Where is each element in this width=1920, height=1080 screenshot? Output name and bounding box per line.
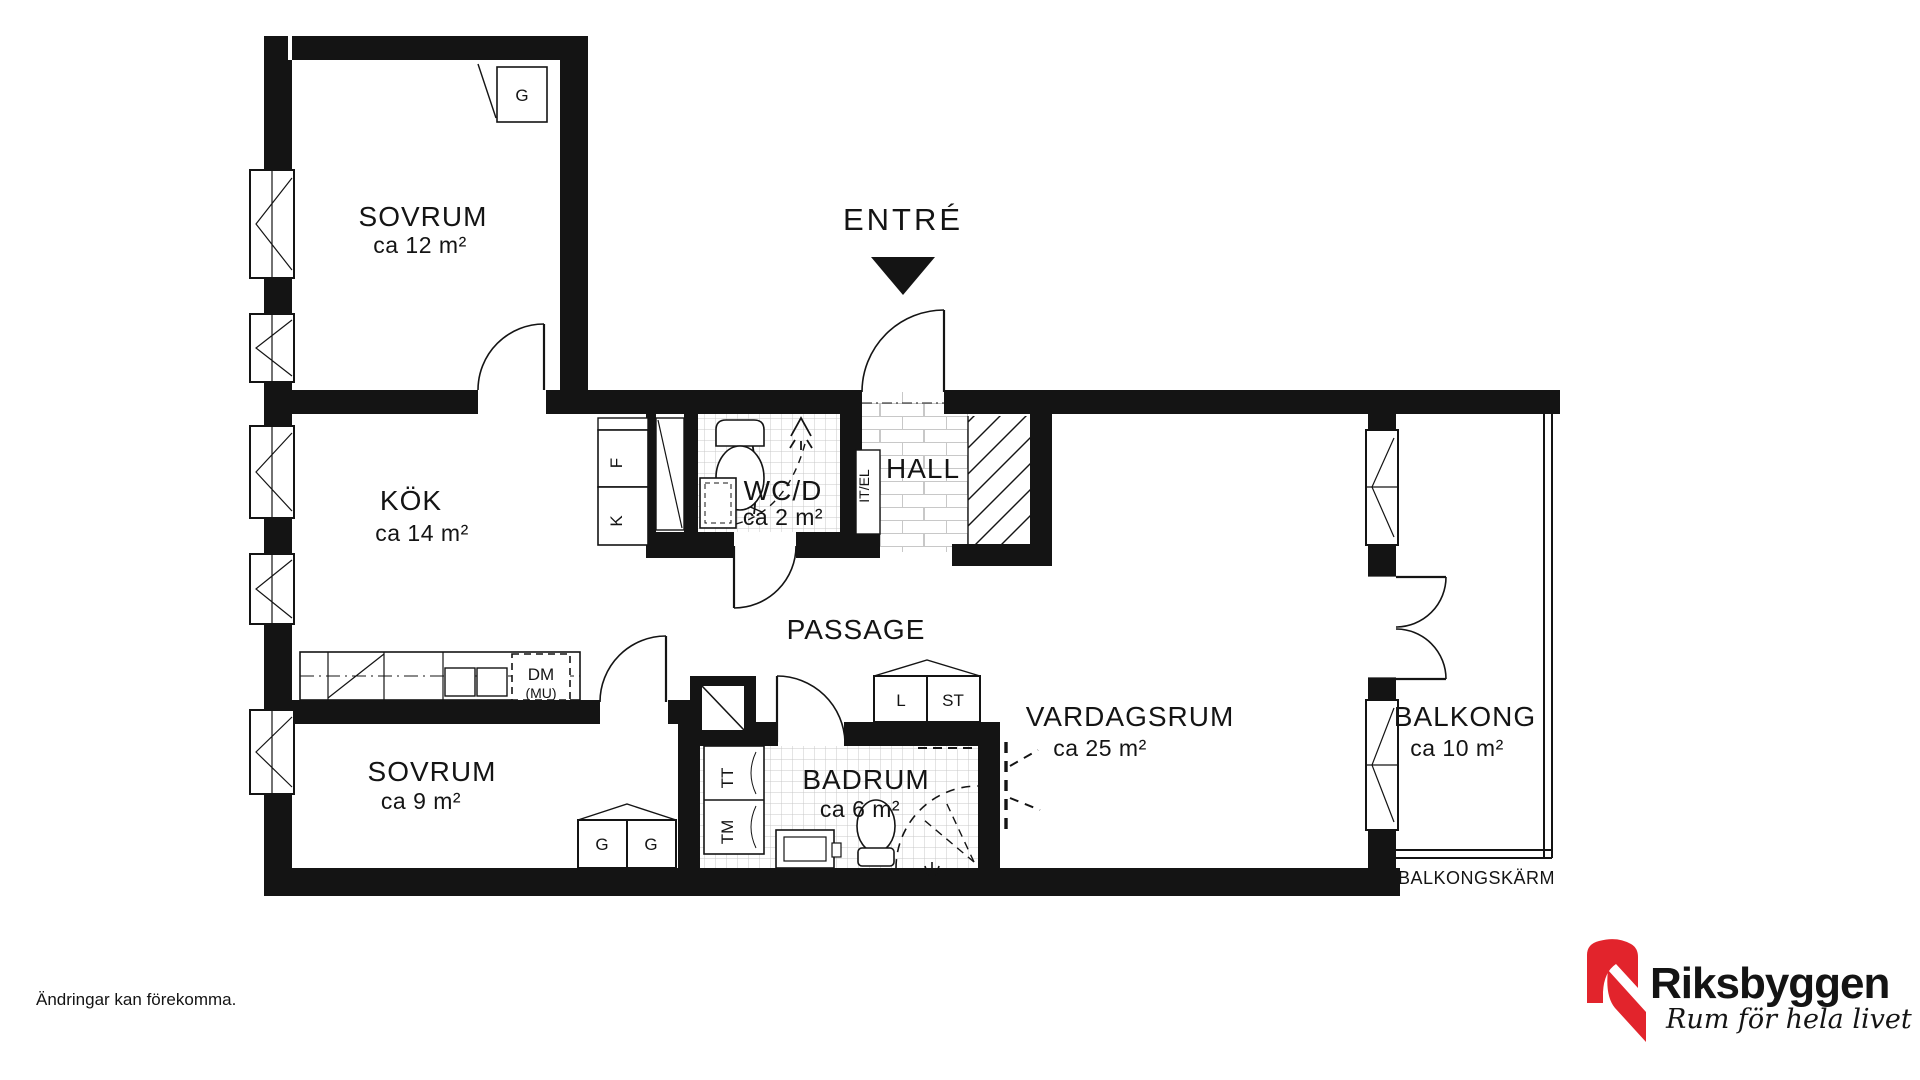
fridge-label: K bbox=[607, 515, 626, 527]
wall-segment bbox=[1368, 830, 1396, 868]
washer-label: TM bbox=[718, 820, 737, 845]
bedroom2-wardrobes bbox=[578, 804, 676, 868]
window bbox=[1366, 430, 1398, 545]
wall-segment bbox=[1030, 414, 1052, 566]
window bbox=[250, 426, 294, 518]
bedroom2-area: ca 9 m² bbox=[381, 788, 461, 814]
wall-segment bbox=[588, 390, 862, 414]
dishwasher-note-label: (MU) bbox=[525, 685, 556, 701]
floorplan-page: ENTRÉ SOVRUM ca 12 m² KÖK ca 14 m² WC/D … bbox=[0, 0, 1920, 1080]
entrance-door bbox=[862, 310, 944, 403]
bedroom1-name: SOVRUM bbox=[359, 201, 488, 232]
kitchen-fixtures bbox=[300, 418, 684, 700]
wardrobe-g2b-label: G bbox=[644, 835, 657, 854]
wall-segment bbox=[944, 390, 1560, 414]
disclaimer-text: Ändringar kan förekomma. bbox=[36, 990, 236, 1009]
wardrobe-g2a-label: G bbox=[595, 835, 608, 854]
stove-plate bbox=[477, 668, 507, 696]
wall-segment bbox=[646, 532, 734, 558]
wall-segment bbox=[684, 414, 698, 532]
ventilation-shaft bbox=[690, 676, 756, 740]
wall-segment bbox=[264, 36, 588, 60]
wall-segment bbox=[292, 390, 478, 414]
wall-segment bbox=[292, 700, 600, 724]
balcony-doors bbox=[1368, 576, 1446, 679]
livingroom-name: VARDAGSRUM bbox=[1026, 701, 1235, 732]
wall-segment bbox=[678, 724, 700, 868]
hall-name: HALL bbox=[886, 453, 960, 484]
riksbyggen-logo-icon-leg bbox=[1607, 970, 1646, 1042]
wall-seam bbox=[288, 36, 292, 60]
wc-sink-cabinet bbox=[700, 478, 736, 528]
linen-cleaning-closet bbox=[874, 660, 980, 722]
wall-segment bbox=[264, 868, 1400, 896]
bathroom-door bbox=[777, 676, 845, 742]
balcony-screen-label: BALKONGSKÄRM bbox=[1398, 868, 1555, 888]
wall-segment bbox=[264, 278, 292, 314]
window bbox=[250, 554, 294, 624]
kitchen-name: KÖK bbox=[380, 485, 442, 516]
bathroom-name: BADRUM bbox=[802, 764, 929, 795]
wc-name: WC/D bbox=[744, 475, 823, 506]
wall-segment bbox=[796, 532, 880, 558]
dryer-label: TT bbox=[718, 768, 737, 789]
wall-segment bbox=[560, 36, 588, 414]
wall-segment bbox=[952, 544, 1052, 566]
linen-label: L bbox=[896, 691, 905, 710]
sliding-partition-dashes bbox=[1006, 742, 1040, 832]
passage-name: PASSAGE bbox=[787, 614, 926, 645]
bathroom-area: ca 6 m² bbox=[820, 796, 900, 822]
bathroom-sink-cabinet bbox=[776, 830, 841, 868]
brand-name: Riksbyggen bbox=[1650, 959, 1889, 1008]
cabinet-top bbox=[598, 418, 648, 430]
wall-segment bbox=[264, 36, 292, 170]
wall-segment bbox=[264, 518, 292, 554]
freezer-label: F bbox=[607, 458, 626, 468]
wall-segment bbox=[264, 382, 292, 426]
bedroom2-name: SOVRUM bbox=[368, 756, 497, 787]
bedroom1-wardrobe bbox=[478, 64, 547, 122]
it-el-label: IT/EL bbox=[856, 469, 872, 503]
balcony-area: ca 10 m² bbox=[1410, 735, 1503, 761]
brand-tagline: Rum för hela livet bbox=[1665, 1004, 1912, 1035]
wall-segment bbox=[1368, 678, 1396, 700]
wall-segment bbox=[978, 722, 1000, 868]
kitchen-area: ca 14 m² bbox=[375, 520, 468, 546]
bedroom1-area: ca 12 m² bbox=[373, 232, 466, 258]
wall-segment bbox=[1368, 414, 1396, 430]
entrance-arrow bbox=[871, 257, 935, 295]
wall-segment bbox=[1368, 545, 1396, 576]
wardrobe-g1-label: G bbox=[515, 86, 528, 105]
cleaning-label: ST bbox=[942, 691, 964, 710]
balcony-structure bbox=[1396, 414, 1552, 858]
window bbox=[250, 710, 294, 794]
window bbox=[250, 314, 294, 382]
stove-plate bbox=[445, 668, 475, 696]
balcony-name: BALKONG bbox=[1394, 701, 1536, 732]
bedroom2-door bbox=[600, 636, 666, 702]
window bbox=[250, 170, 294, 278]
livingroom-area: ca 25 m² bbox=[1053, 735, 1146, 761]
floorplan-drawing: ENTRÉ SOVRUM ca 12 m² KÖK ca 14 m² WC/D … bbox=[0, 0, 1920, 1080]
wall-segment bbox=[546, 390, 560, 414]
wall-segment bbox=[844, 722, 980, 746]
entrance-label: ENTRÉ bbox=[843, 202, 963, 237]
wc-area: ca 2 m² bbox=[743, 504, 823, 530]
riksbyggen-logo: Riksbyggen Rum för hela livet bbox=[1587, 939, 1912, 1042]
dishwasher-label: DM bbox=[528, 665, 554, 684]
bedroom1-door bbox=[478, 324, 544, 390]
wall-segment bbox=[264, 624, 292, 710]
